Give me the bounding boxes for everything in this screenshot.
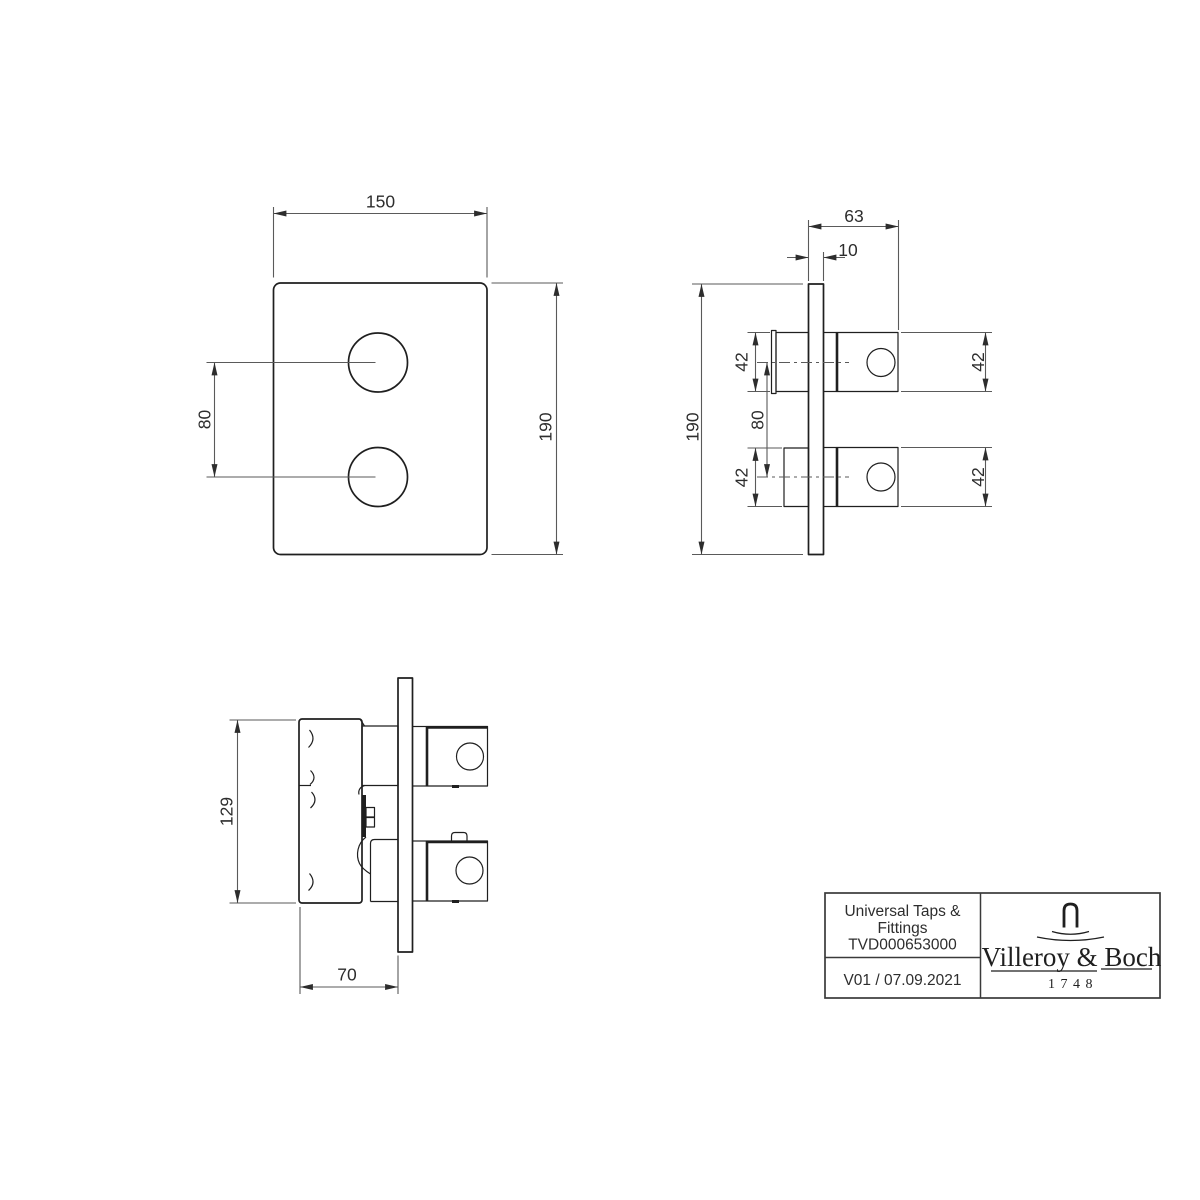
cast-break-line [310, 771, 314, 785]
upper-handle-button [867, 349, 895, 377]
dim-label-front-height: 190 [536, 412, 556, 441]
rough-in-body [299, 719, 362, 903]
dim-label-plate-thickness: 10 [838, 240, 858, 260]
dim-label-bottom-body-depth: 70 [337, 965, 357, 985]
temperature-stop-button [452, 833, 468, 842]
dim-side-height: 190 [683, 284, 804, 555]
dim-bottom-body-depth: 70 [300, 907, 398, 994]
dim-label-lower-body-left: 42 [732, 468, 752, 487]
dim-label-side-spacing: 80 [748, 410, 768, 430]
adjuster-screw [366, 818, 375, 828]
upper-handle-button [457, 743, 484, 770]
body-break-curve [358, 837, 371, 874]
bottom-view: 129 70 [217, 678, 488, 994]
dim-side-depth: 63 [809, 206, 899, 330]
wall-plate-bottom [398, 678, 413, 952]
technical-drawing-page: 150 190 80 [0, 0, 1200, 1200]
article-number: TVD000653000 [848, 937, 957, 954]
product-name-line2: Fittings [878, 920, 928, 937]
brand-year: 1748 [1048, 977, 1098, 992]
dim-label-side-depth: 63 [844, 206, 863, 226]
wall-plate-side [809, 284, 824, 555]
dim-front-height: 190 [492, 283, 564, 555]
dim-label-side-height: 190 [683, 412, 703, 441]
lower-handle-button [456, 857, 483, 884]
front-view: 150 190 80 [195, 192, 564, 555]
cast-break-line [311, 792, 315, 808]
title-block: Universal Taps & Fittings TVD000653000 V… [825, 893, 1162, 998]
dim-label-lower-body-right: 42 [968, 467, 988, 486]
revision-date: V01 / 07.09.2021 [843, 972, 961, 989]
dim-lower-body-right: 42 [901, 448, 992, 507]
upper-cartridge [362, 726, 398, 786]
drawing-svg: 150 190 80 [0, 0, 1200, 1200]
cast-break-line [309, 874, 313, 891]
side-view: 63 10 190 42 80 [683, 206, 993, 555]
dim-label-bottom-body-height: 129 [217, 797, 237, 826]
dim-label-front-width: 150 [366, 192, 395, 212]
dim-plate-thickness: 10 [787, 240, 858, 281]
cast-break-line [309, 730, 313, 748]
dim-side-spacing: 80 [748, 363, 768, 478]
lower-cartridge [371, 840, 399, 902]
lower-handle-bottom-view [427, 841, 488, 901]
upper-handle-bottom-view [427, 727, 488, 787]
dim-label-upper-body-right: 42 [968, 352, 988, 371]
dim-front-spacing: 80 [195, 363, 376, 478]
dim-bottom-body-height: 129 [217, 720, 297, 903]
brand-name: Villeroy & Boch [982, 942, 1162, 972]
product-name-line1: Universal Taps & [844, 903, 961, 920]
dim-label-front-spacing: 80 [195, 410, 215, 430]
dim-label-upper-body-left: 42 [732, 352, 752, 371]
cartridge-spindle [362, 795, 367, 837]
dim-front-width: 150 [274, 192, 488, 278]
adjuster-screw [366, 808, 375, 818]
lower-handle-button [867, 463, 895, 491]
dim-upper-body-right: 42 [901, 333, 992, 392]
wall-plate-front [274, 283, 488, 555]
